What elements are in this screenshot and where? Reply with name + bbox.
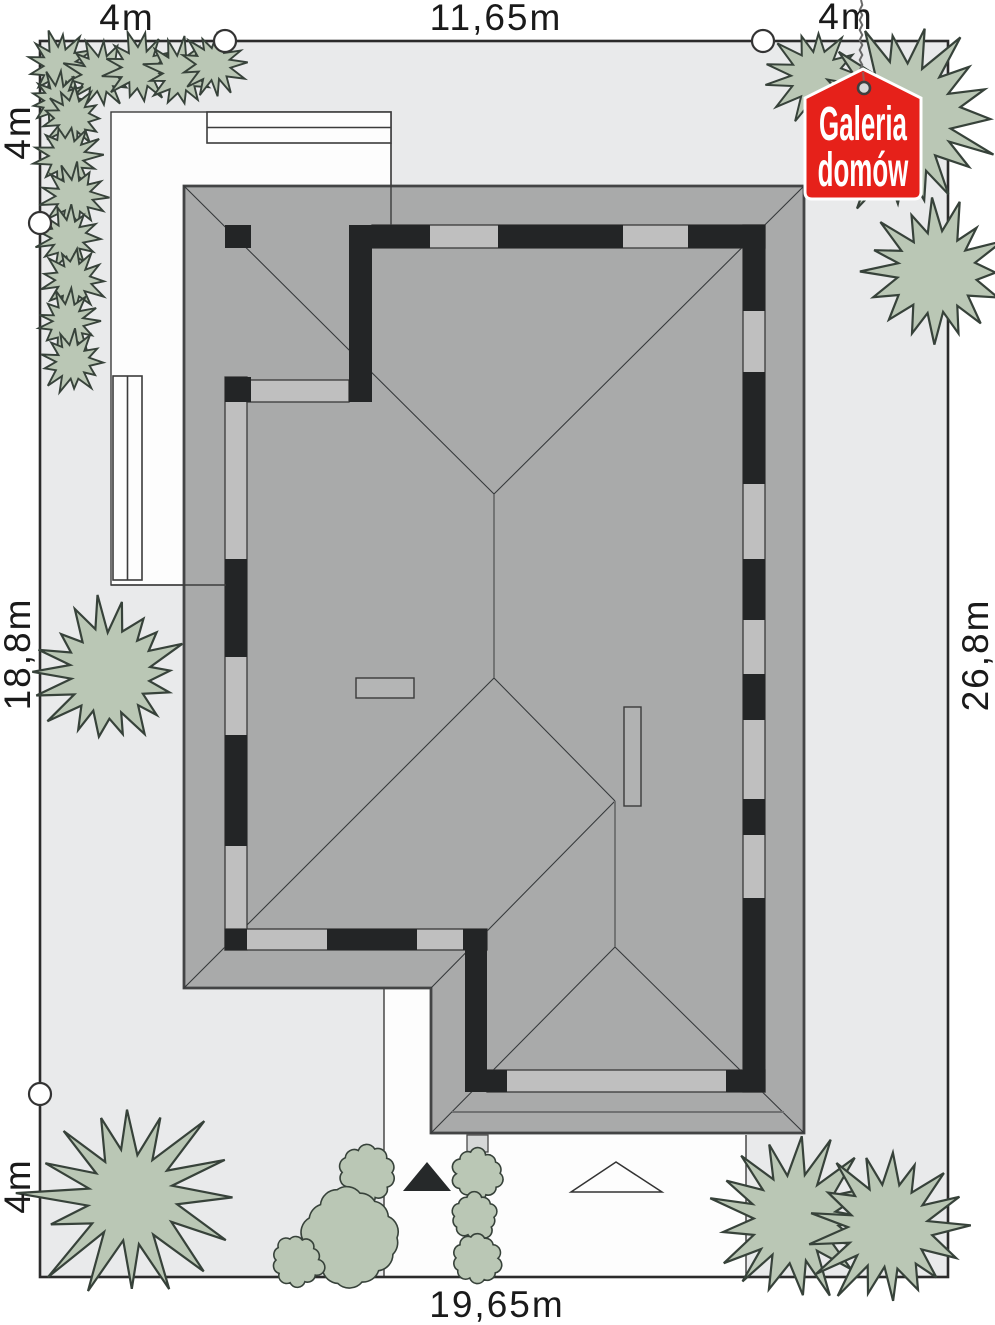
svg-text:4m: 4m bbox=[0, 104, 38, 159]
svg-text:4m: 4m bbox=[99, 0, 154, 38]
svg-text:domów: domów bbox=[818, 144, 909, 198]
svg-text:18,8m: 18,8m bbox=[0, 598, 38, 711]
svg-text:4m: 4m bbox=[818, 0, 873, 37]
svg-text:26,8m: 26,8m bbox=[955, 599, 995, 712]
svg-text:11,65m: 11,65m bbox=[430, 0, 563, 38]
svg-text:4m: 4m bbox=[0, 1158, 38, 1213]
svg-text:19,65m: 19,65m bbox=[429, 1284, 564, 1325]
